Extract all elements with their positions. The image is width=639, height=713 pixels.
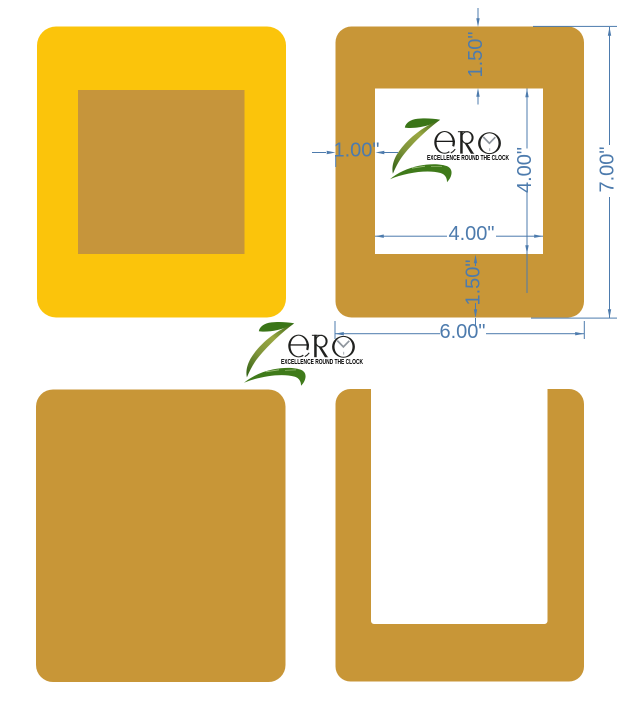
svg-text:1.50": 1.50" [463, 259, 485, 305]
svg-text:4.00": 4.00" [448, 223, 494, 245]
svg-text:6.00": 6.00" [439, 321, 485, 343]
svg-text:7.00": 7.00" [597, 146, 619, 192]
svg-text:1.50": 1.50" [465, 31, 487, 77]
svg-text:1.00": 1.00" [333, 140, 379, 162]
svg-text:4.00": 4.00" [514, 147, 536, 193]
